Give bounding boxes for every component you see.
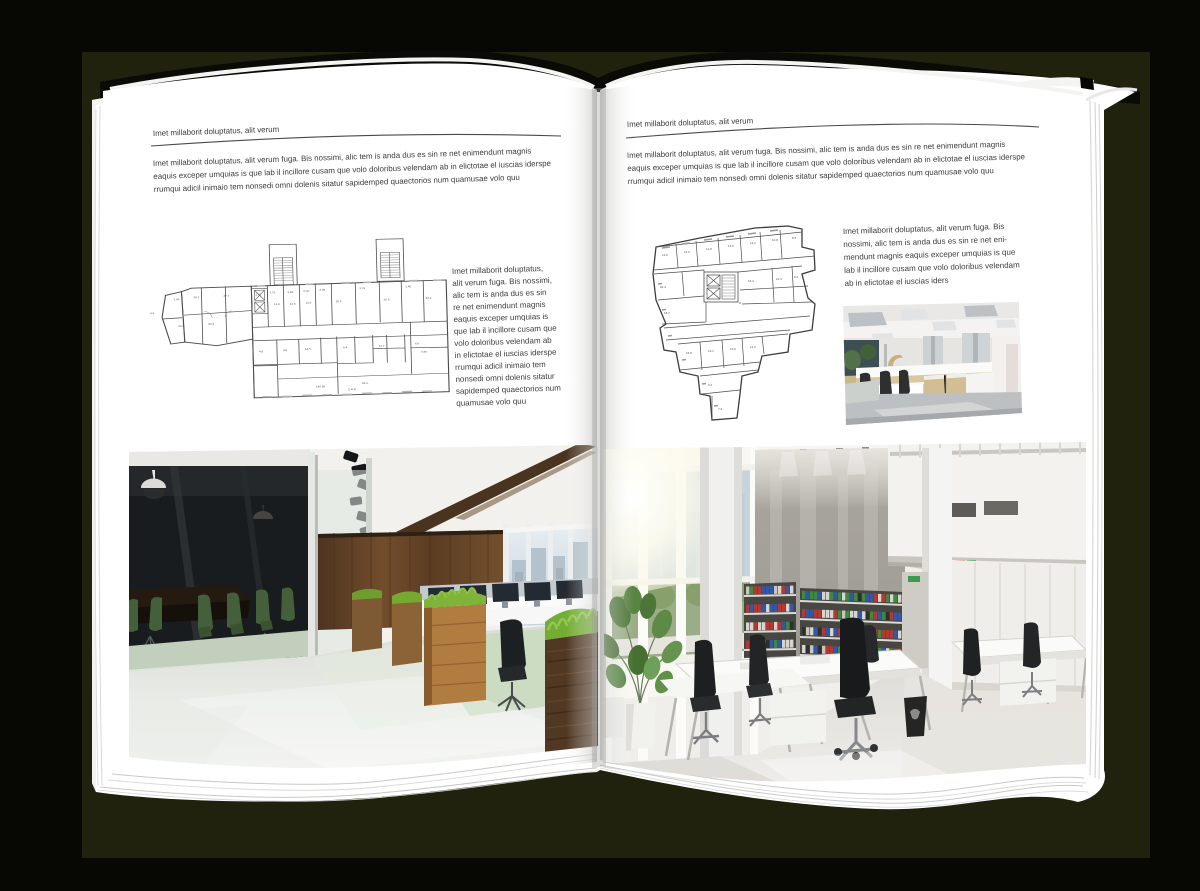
svg-text:12.2: 12.2 [750, 241, 756, 245]
svg-text:40.3: 40.3 [208, 322, 214, 326]
svg-text:7.2: 7.2 [718, 407, 723, 411]
svg-text:14.5: 14.5 [305, 347, 311, 351]
svg-text:11.2: 11.2 [750, 345, 756, 349]
svg-text:12.8: 12.8 [274, 302, 280, 306]
svg-text:3.09: 3.09 [319, 288, 325, 292]
svg-text:26.8: 26.8 [384, 298, 390, 302]
svg-text:13.1: 13.1 [708, 349, 714, 353]
svg-text:8.6: 8.6 [792, 236, 797, 240]
svg-text:2.96: 2.96 [174, 297, 180, 301]
svg-text:9.8: 9.8 [283, 348, 288, 352]
svg-text:22.4: 22.4 [660, 285, 666, 289]
svg-text:1.45: 1.45 [405, 285, 411, 289]
svg-text:6.8: 6.8 [415, 342, 420, 346]
svg-text:37.7: 37.7 [223, 294, 229, 298]
svg-text:10.8: 10.8 [772, 238, 778, 242]
svg-text:11.7: 11.7 [379, 344, 385, 348]
svg-text:3.76: 3.76 [359, 286, 365, 290]
svg-text:9.4: 9.4 [708, 383, 713, 387]
svg-text:3.75: 3.75 [269, 291, 275, 295]
svg-text:30.2: 30.2 [194, 295, 200, 299]
svg-text:2.85: 2.85 [287, 290, 293, 294]
svg-text:18.7: 18.7 [664, 311, 670, 315]
svg-text:2.72: 2.72 [255, 293, 261, 297]
svg-text:4.9: 4.9 [150, 311, 155, 315]
svg-text:2.30: 2.30 [303, 289, 309, 293]
svg-text:9.2: 9.2 [794, 275, 799, 279]
svg-text:0.86: 0.86 [421, 350, 427, 354]
svg-text:18.5: 18.5 [336, 299, 342, 303]
svg-text:12.6: 12.6 [290, 302, 296, 306]
svg-text:96.3: 96.3 [362, 381, 368, 385]
svg-text:12.4: 12.4 [776, 277, 782, 281]
svg-text:4.8: 4.8 [259, 350, 264, 354]
svg-text:2-й эт: 2-й эт [348, 387, 357, 391]
svg-text:14.6: 14.6 [730, 347, 736, 351]
svg-text:16.3: 16.3 [748, 279, 754, 283]
svg-text:13.5: 13.5 [728, 244, 734, 248]
svg-text:14.2: 14.2 [684, 250, 690, 254]
svg-text:8.4: 8.4 [343, 345, 348, 349]
svg-text:15.8: 15.8 [686, 351, 692, 355]
svg-text:11.8: 11.8 [306, 301, 312, 305]
svg-text:140.85: 140.85 [316, 385, 326, 389]
svg-text:12.6: 12.6 [662, 253, 668, 257]
svg-text:32.2: 32.2 [426, 296, 432, 300]
svg-text:26.6: 26.6 [178, 324, 184, 328]
svg-text:11.8: 11.8 [706, 247, 712, 251]
